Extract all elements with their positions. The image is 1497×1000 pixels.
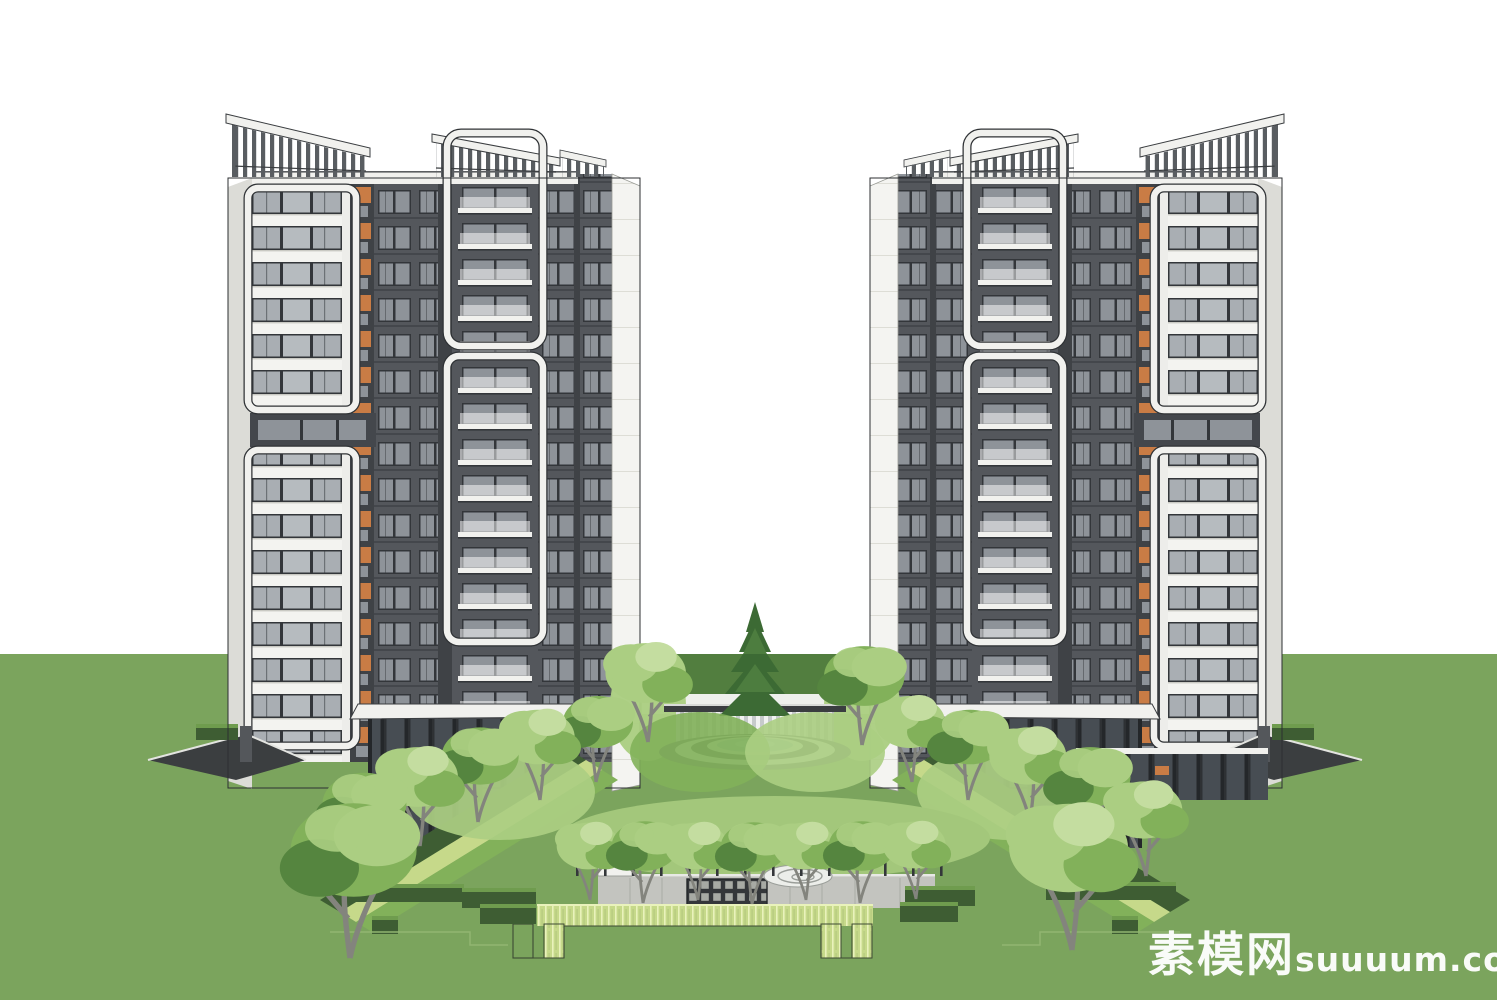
watermark-site-name: 素模网 [1148,916,1295,985]
watermark: 素模网suuuum.com [1148,916,1497,985]
rendering-canvas [0,0,1497,1000]
watermark-domain: suuuum.com [1295,940,1497,979]
architectural-rendering-scene: 素模网suuuum.com [0,0,1497,1000]
